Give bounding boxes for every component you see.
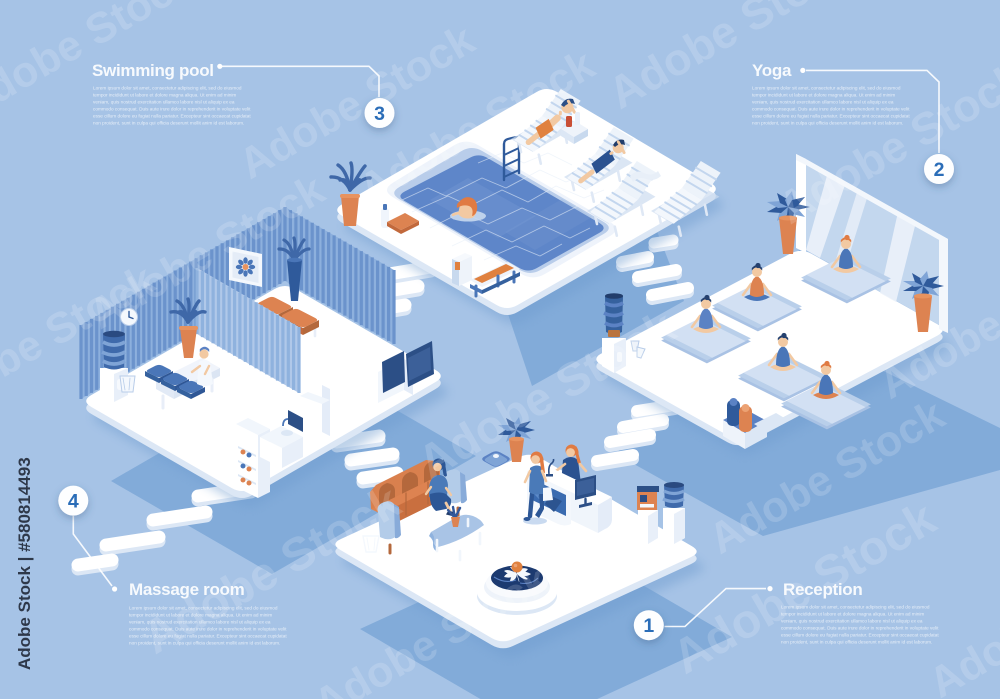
svg-text:commodo consequat. Duis aute i: commodo consequat. Duis aute irure dolor… xyxy=(752,107,910,112)
svg-text:Adobe Stock | #580814493: Adobe Stock | #580814493 xyxy=(15,457,34,670)
svg-text:esse cillum dolore eu fugiat n: esse cillum dolore eu fugiat nulla paria… xyxy=(752,114,910,119)
svg-text:commodo consequat. Duis aute i: commodo consequat. Duis aute irure dolor… xyxy=(781,626,939,631)
svg-text:commodo consequat. Duis aute i: commodo consequat. Duis aute irure dolor… xyxy=(93,107,251,112)
svg-text:tempor incididunt ut labore et: tempor incididunt ut labore et dolore ma… xyxy=(752,93,895,98)
svg-text:esse cillum dolore eu fugiat n: esse cillum dolore eu fugiat nulla paria… xyxy=(93,114,251,119)
svg-text:4: 4 xyxy=(68,490,79,512)
svg-text:non proident, sunt in culpa qu: non proident, sunt in culpa qui officia … xyxy=(781,640,932,645)
svg-text:Yoga: Yoga xyxy=(752,61,792,80)
svg-text:1: 1 xyxy=(643,615,654,637)
svg-text:Lorem ipsum dolor sit amet, co: Lorem ipsum dolor sit amet, consectetur … xyxy=(752,86,901,91)
svg-text:tempor incididunt ut labore et: tempor incididunt ut labore et dolore ma… xyxy=(93,93,236,98)
svg-text:esse cillum dolore eu fugiat n: esse cillum dolore eu fugiat nulla paria… xyxy=(781,633,939,638)
svg-text:2: 2 xyxy=(934,159,945,181)
svg-text:Lorem ipsum dolor sit amet, co: Lorem ipsum dolor sit amet, consectetur … xyxy=(93,86,242,91)
svg-text:veniam, quis nostrud exercitat: veniam, quis nostrud exercitation ullamc… xyxy=(93,100,235,105)
svg-text:veniam, quis nostrud exercitat: veniam, quis nostrud exercitation ullamc… xyxy=(752,100,894,105)
svg-text:Swimming pool: Swimming pool xyxy=(92,61,214,80)
svg-text:non proident, sunt in culpa qu: non proident, sunt in culpa qui officia … xyxy=(93,121,244,126)
